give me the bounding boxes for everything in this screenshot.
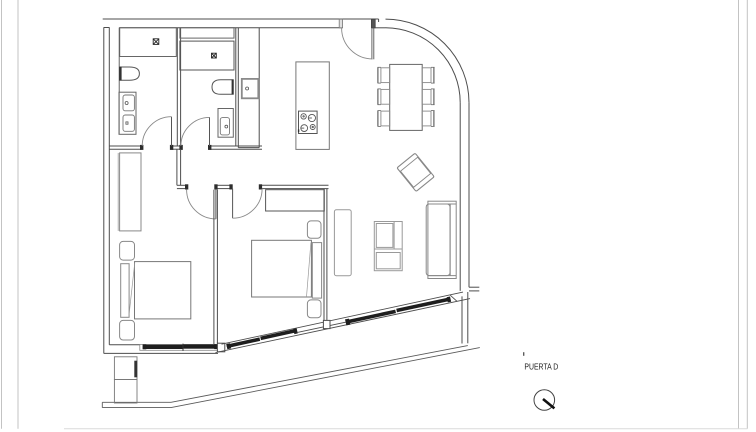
- svg-text:PUERTA D: PUERTA D: [524, 363, 558, 372]
